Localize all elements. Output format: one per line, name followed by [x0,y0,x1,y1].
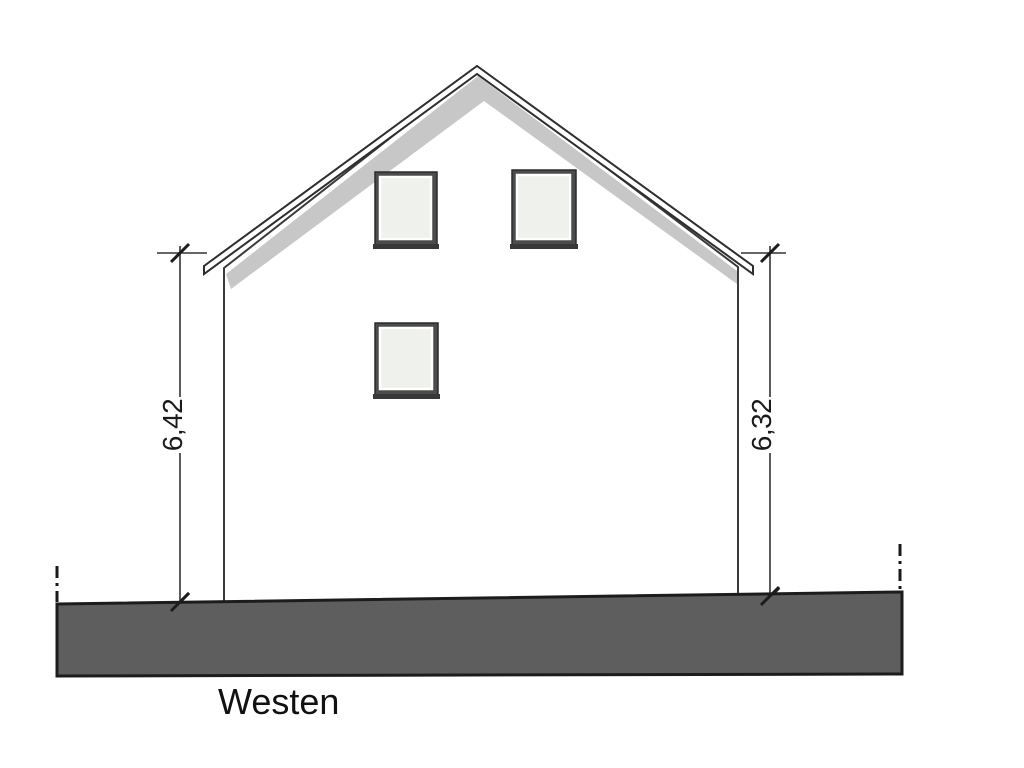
elevation-label: Westen [218,681,339,722]
window-lower-middle [373,323,440,399]
dimension-left: 6,42 [155,244,207,611]
ground [57,592,902,676]
window-sill [373,244,439,249]
dimension-right: 6,32 [741,244,786,606]
window-sill [373,394,440,399]
dimension-label-left: 6,42 [157,399,188,452]
elevation-drawing: 6,42 6,32 Westen [0,0,1024,768]
window-upper-right [510,170,578,249]
window-sill [510,244,578,249]
window-glass [380,328,432,389]
window-glass [380,177,431,239]
house-wall [224,70,738,602]
elevation-svg: 6,42 6,32 Westen [0,0,1024,768]
window-glass [517,175,570,239]
window-upper-left [373,172,439,249]
dimension-label-right: 6,32 [746,399,777,452]
